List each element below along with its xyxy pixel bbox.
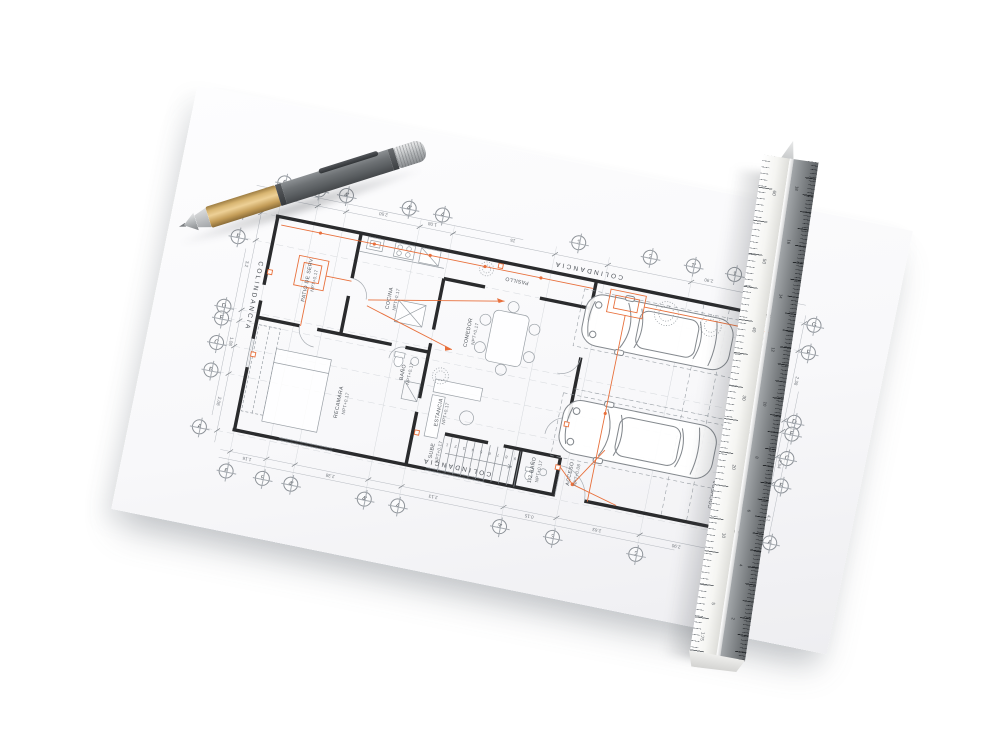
ruler-number: 40	[750, 327, 756, 333]
ruler-number: 10	[720, 532, 726, 538]
ruler-number: 5	[710, 602, 715, 605]
ruler-number: 12	[770, 347, 776, 352]
stair-number: 2	[454, 444, 457, 449]
stair-number: 4	[471, 448, 474, 453]
furniture	[239, 219, 585, 483]
ruler-number: 14	[778, 293, 784, 298]
ruler-number: 20	[730, 464, 736, 470]
ruler-number: 16	[786, 240, 792, 245]
ruler-number: 8	[755, 456, 760, 459]
ruler-number: 60	[770, 190, 776, 196]
stair-number: 3	[463, 446, 466, 451]
stair-number: 6	[488, 451, 491, 456]
ruler-number: 18	[794, 186, 800, 191]
stair-number: 1	[446, 442, 449, 447]
stair-number: 9	[513, 456, 516, 461]
stair-number: 5	[479, 449, 482, 454]
stair-number: 7	[496, 453, 499, 458]
ruler-number: 4	[739, 563, 744, 566]
dimension-label: 15	[510, 238, 516, 244]
photo-scene: 6 5 4' 4' 4 3 2 1' 1 6 5 4' 4' 4 3' 3 2 …	[0, 0, 1000, 750]
stair-number: 8	[505, 454, 508, 459]
ruler-number: 10	[762, 401, 768, 406]
ruler-number: 50	[760, 258, 766, 264]
ruler-number: 2	[731, 617, 736, 620]
ruler-number: 6	[747, 510, 752, 513]
ruler-number: 30	[740, 395, 746, 401]
